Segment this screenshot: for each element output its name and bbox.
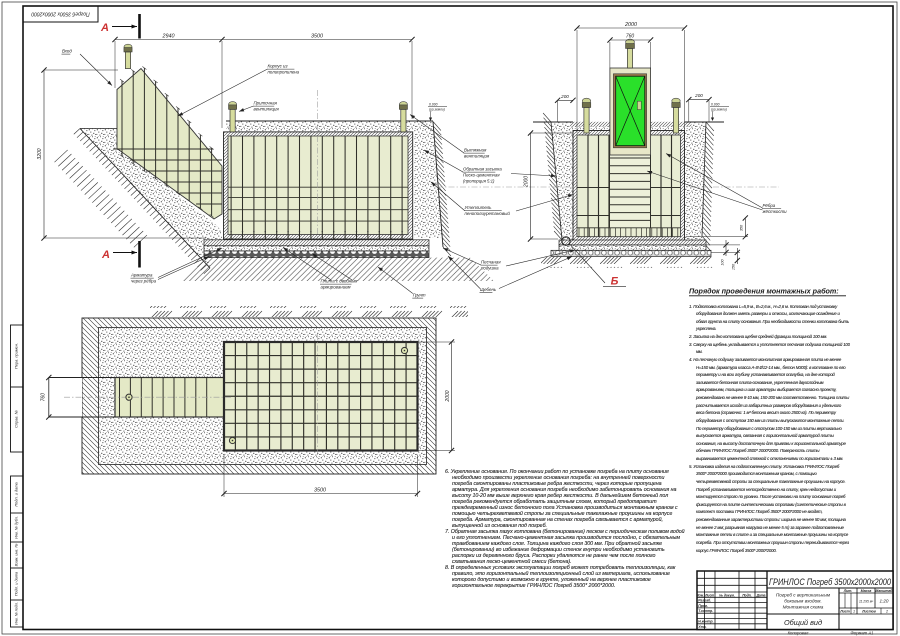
svg-text:Н.контр.: Н.контр. xyxy=(698,620,713,624)
svg-text:Лит.: Лит. xyxy=(843,589,853,593)
svg-text:Утеплитель: Утеплитель xyxy=(465,205,493,210)
svg-text:Дата: Дата xyxy=(756,593,766,597)
svg-text:Погреб с вертикальным: Погреб с вертикальным xyxy=(776,593,831,598)
svg-text:Инв. № подл.: Инв. № подл. xyxy=(14,602,18,625)
svg-text:полипропилена: полипропилена xyxy=(268,70,300,75)
svg-text:Вход: Вход xyxy=(62,49,72,54)
svg-text:Изм.: Изм. xyxy=(697,593,704,597)
svg-text:100: 100 xyxy=(720,258,724,265)
svg-text:Корпус из: Корпус из xyxy=(268,64,288,69)
svg-text:Справ. №: Справ. № xyxy=(13,409,18,427)
svg-text:А: А xyxy=(101,249,110,261)
svg-text:№ докум.: № докум. xyxy=(719,593,735,597)
svg-text:Рёбра: Рёбра xyxy=(763,203,776,208)
svg-text:Инв. № дубл.: Инв. № дубл. xyxy=(14,516,18,539)
svg-text:1: 1 xyxy=(853,610,855,614)
svg-text:Б: Б xyxy=(611,276,619,288)
svg-text:пенополиуретановый: пенополиуретановый xyxy=(465,211,511,216)
svg-text:Порядок проведения монтажных р: Порядок проведения монтажных работ: xyxy=(689,287,839,296)
svg-text:0.000: 0.000 xyxy=(429,102,438,106)
svg-text:200: 200 xyxy=(694,93,703,98)
svg-text:Формат А1: Формат А1 xyxy=(851,630,874,635)
svg-text:армированием: армированием xyxy=(321,285,351,290)
svg-text:Общий вид: Общий вид xyxy=(784,618,822,627)
svg-text:вентиляция: вентиляция xyxy=(464,154,490,159)
svg-text:3200: 3200 xyxy=(37,148,43,159)
svg-text:2940: 2940 xyxy=(162,33,175,39)
svg-text:Пров.: Пров. xyxy=(698,604,708,608)
svg-text:150: 150 xyxy=(732,263,736,270)
svg-text:11.295 м³: 11.295 м³ xyxy=(859,599,874,603)
svg-text:Арматура: Арматура xyxy=(130,273,153,278)
svg-text:Листов: Листов xyxy=(861,610,877,614)
svg-text:Подп. и дата: Подп. и дата xyxy=(13,571,18,596)
svg-text:Монтажная схема: Монтажная схема xyxy=(783,605,824,610)
svg-text:3500: 3500 xyxy=(311,33,323,39)
svg-text:Масса: Масса xyxy=(861,589,872,593)
svg-text:Т.контр.: Т.контр. xyxy=(698,609,713,613)
svg-text:200: 200 xyxy=(560,94,569,99)
svg-text:3500: 3500 xyxy=(314,487,326,493)
svg-text:Подп. и дата: Подп. и дата xyxy=(13,481,18,506)
svg-text:Разраб.: Разраб. xyxy=(698,599,711,603)
svg-text:2: 2 xyxy=(885,610,888,614)
svg-text:жёсткости: жёсткости xyxy=(762,209,788,214)
svg-text:Погреб 3500х 2000х2000: Погреб 3500х 2000х2000 xyxy=(31,11,90,17)
svg-text:Утв.: Утв. xyxy=(698,625,706,629)
svg-text:Песко-цементная: Песко-цементная xyxy=(463,173,500,178)
svg-text:Приточная: Приточная xyxy=(254,101,278,106)
svg-text:подушка: подушка xyxy=(481,266,499,271)
svg-text:0.000: 0.000 xyxy=(711,102,720,106)
svg-text:2000: 2000 xyxy=(445,390,451,402)
svg-text:Копировал: Копировал xyxy=(788,630,809,635)
svg-text:Грунт: Грунт xyxy=(413,293,426,298)
svg-text:350: 350 xyxy=(740,224,744,231)
svg-text:Обратная засыпка: Обратная засыпка xyxy=(463,167,502,172)
svg-text:Подп.: Подп. xyxy=(742,593,751,597)
svg-text:боковым входом.: боковым входом. xyxy=(784,599,822,604)
svg-text:(ур.земли): (ур.земли) xyxy=(429,107,445,111)
svg-text:2000: 2000 xyxy=(524,176,530,188)
svg-text:Вытяжная: Вытяжная xyxy=(464,148,487,153)
svg-text:Лист: Лист xyxy=(839,610,850,614)
svg-text:Песчаная: Песчаная xyxy=(481,260,501,265)
svg-text:А: А xyxy=(100,22,109,34)
svg-text:Масштаб: Масштаб xyxy=(875,589,893,593)
svg-text:760: 760 xyxy=(41,393,47,402)
svg-text:ГРИНЛОС Погреб 3500х2000х2000: ГРИНЛОС Погреб 3500х2000х2000 xyxy=(769,577,892,588)
svg-text:(ур.земли): (ур.земли) xyxy=(711,107,727,111)
svg-text:Перв. примен.: Перв. примен. xyxy=(13,343,18,369)
svg-text:(пропорция 5:1): (пропорция 5:1) xyxy=(463,179,495,184)
svg-text:Плита с двойным: Плита с двойным xyxy=(321,279,358,284)
svg-text:2000: 2000 xyxy=(624,22,637,28)
svg-text:760: 760 xyxy=(626,34,635,40)
svg-text:1:20: 1:20 xyxy=(880,599,889,604)
svg-text:через рёбра: через рёбра xyxy=(131,279,157,284)
svg-text:Лист: Лист xyxy=(704,593,714,597)
svg-text:Взам. инв. №: Взам. инв. № xyxy=(14,544,18,567)
svg-text:вентиляция: вентиляция xyxy=(254,107,280,112)
svg-text:Щебень: Щебень xyxy=(480,287,497,292)
